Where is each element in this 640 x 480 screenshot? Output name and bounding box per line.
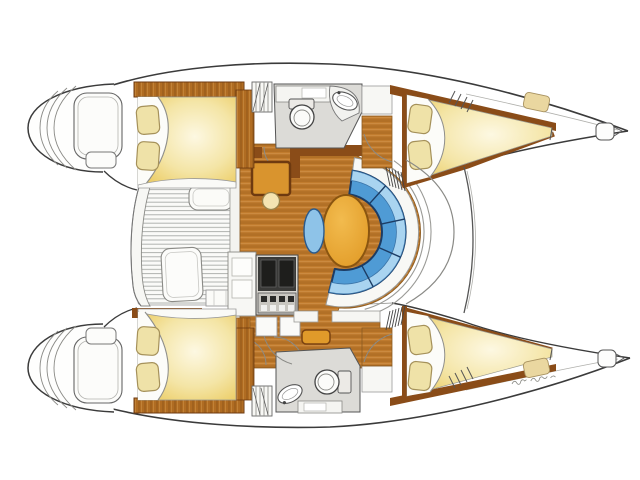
starboard-companionway-steps [252,386,272,416]
port-swim-platform [74,93,122,159]
nav-stool [263,193,280,210]
stool [304,209,324,253]
pillow [136,141,160,170]
bow-locker [596,123,614,140]
toilet-tank [338,371,351,393]
starboard-swim-platform [74,337,122,403]
starboard-passage [362,328,392,392]
cabin-wall [402,90,407,186]
catamaran-floorplan: Catamaran interior layout floor plan, to… [0,0,640,480]
galley-back-counter [332,311,380,322]
galley-back-counter [294,311,318,322]
port-head [274,84,362,148]
pillow [136,362,160,392]
forward-beam [464,167,473,313]
port-aft-cabin [134,82,254,188]
pillow [136,326,160,355]
chart-table [252,162,290,195]
pillow [408,361,433,391]
galley-cabinet-door [256,317,277,336]
cabin-shelf [134,82,244,97]
cabin-wall [402,306,407,400]
cabin-floor-strip [236,90,254,168]
cockpit [131,185,234,306]
galley-stove [256,255,298,315]
catamaran-floorplan-page: Catamaran interior layout floor plan, to… [0,0,640,480]
cabin-floor-strip [236,328,254,400]
bow-locker [598,350,616,367]
helm-seat [189,185,233,210]
starboard-aft-cabin [132,308,254,413]
pillow [407,104,433,135]
cockpit-cushion [161,247,204,302]
saloon-bench-seat [302,330,330,344]
port-boarding-step [86,152,116,168]
pillow [136,105,160,135]
dinette-table [323,195,369,267]
deck-hatch [523,92,551,113]
starboard-boarding-step [86,328,116,344]
pillow [407,325,433,356]
port-companionway-steps [252,82,272,112]
port-passage [362,86,392,168]
toilet [315,370,339,394]
starboard-transom [28,324,122,412]
toilet [290,105,314,129]
port-transom [28,84,122,172]
pillow [408,140,433,170]
